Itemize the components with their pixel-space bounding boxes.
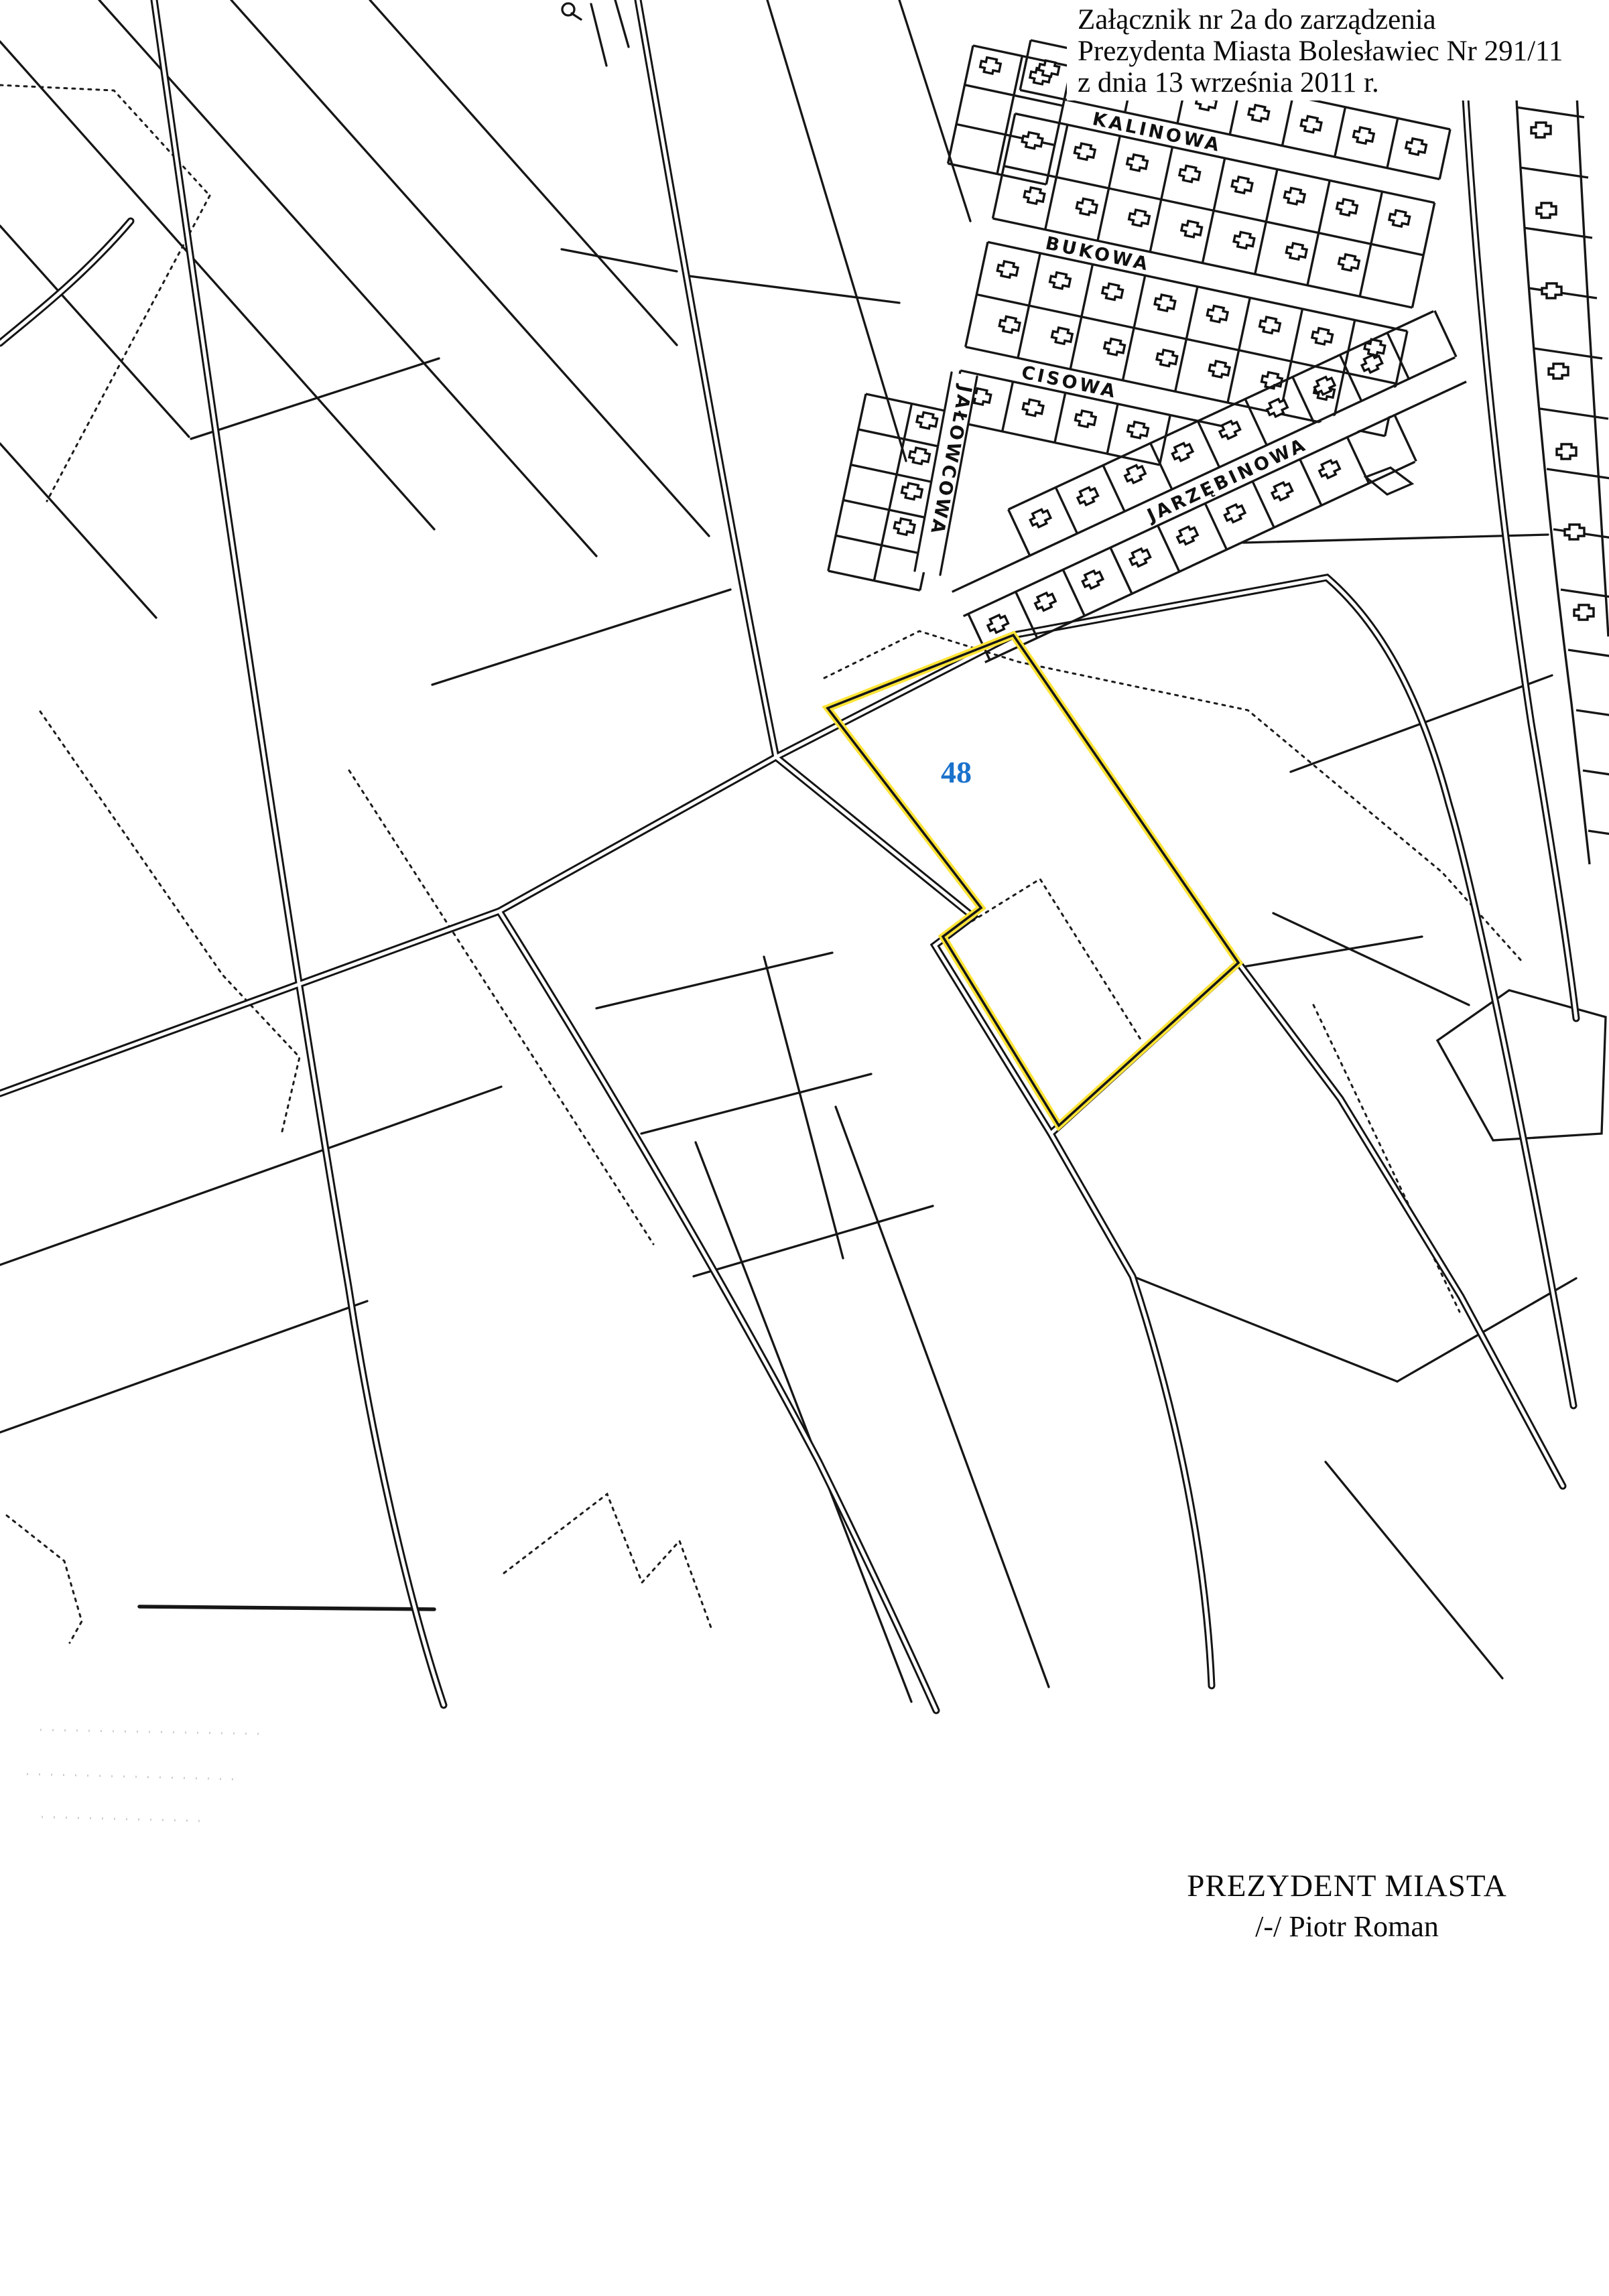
signature-title: PREZYDENT MIASTA [1139, 1868, 1555, 1904]
annotation-line-1: Załącznik nr 2a do zarządzenia [1078, 4, 1609, 36]
signature-name: /-/ Piotr Roman [1139, 1909, 1555, 1944]
parcel-number-label: 48 [941, 755, 972, 789]
cadastral-map: KALINOWA BUKOWA CISOWA JAŁOWCOWA JARZĘBI… [0, 0, 1609, 2296]
signature-block: PREZYDENT MIASTA /-/ Piotr Roman [1139, 1868, 1555, 1944]
annotation-line-2: Prezydenta Miasta Bolesławiec Nr 291/11 [1078, 36, 1609, 67]
annotation-line-3: z dnia 13 września 2011 r. [1078, 67, 1609, 98]
cadastral-map-page: KALINOWA BUKOWA CISOWA JAŁOWCOWA JARZĘBI… [0, 0, 1609, 2296]
annotation-block: Załącznik nr 2a do zarządzenia Prezydent… [1067, 0, 1609, 100]
